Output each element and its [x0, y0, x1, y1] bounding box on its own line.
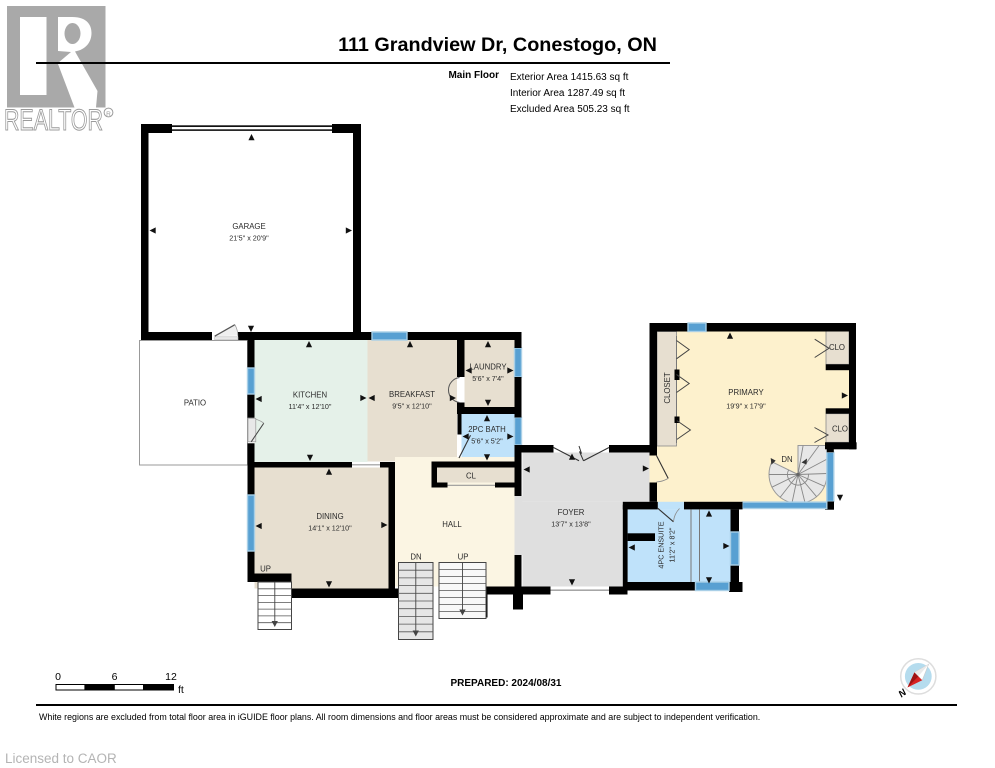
svg-text:CLOSET: CLOSET: [663, 372, 672, 403]
svg-text:CL: CL: [466, 472, 477, 481]
svg-text:11'2" x 8'2": 11'2" x 8'2": [668, 527, 677, 562]
svg-text:PRIMARY: PRIMARY: [728, 388, 764, 397]
svg-text:FOYER: FOYER: [558, 508, 585, 517]
svg-text:GARAGE: GARAGE: [232, 222, 265, 231]
svg-text:BREAKFAST: BREAKFAST: [389, 390, 435, 399]
svg-text:UP: UP: [458, 553, 469, 562]
svg-text:CLO: CLO: [832, 425, 848, 434]
svg-text:19'9" x 17'9": 19'9" x 17'9": [726, 402, 766, 411]
svg-text:5'6" x 7'4": 5'6" x 7'4": [472, 374, 504, 383]
svg-text:4PC ENSUITE: 4PC ENSUITE: [657, 521, 666, 568]
svg-text:UP: UP: [260, 565, 271, 574]
svg-text:DN: DN: [781, 455, 792, 464]
svg-text:9'5" x 12'10": 9'5" x 12'10": [392, 402, 432, 411]
svg-text:HALL: HALL: [442, 520, 462, 529]
svg-text:KITCHEN: KITCHEN: [293, 391, 327, 400]
svg-text:13'7" x 13'8": 13'7" x 13'8": [551, 520, 591, 529]
svg-text:CLO: CLO: [829, 343, 845, 352]
svg-text:5'6" x 5'2": 5'6" x 5'2": [471, 437, 503, 446]
svg-text:LAUNDRY: LAUNDRY: [469, 363, 507, 372]
svg-text:2PC BATH: 2PC BATH: [468, 425, 506, 434]
svg-text:DN: DN: [410, 553, 421, 562]
svg-text:14'1" x 12'10": 14'1" x 12'10": [308, 524, 352, 533]
svg-text:PATIO: PATIO: [184, 399, 206, 408]
svg-text:11'4" x 12'10": 11'4" x 12'10": [289, 402, 332, 411]
svg-text:DINING: DINING: [316, 512, 343, 521]
svg-text:21'5" x 20'9": 21'5" x 20'9": [229, 234, 269, 243]
